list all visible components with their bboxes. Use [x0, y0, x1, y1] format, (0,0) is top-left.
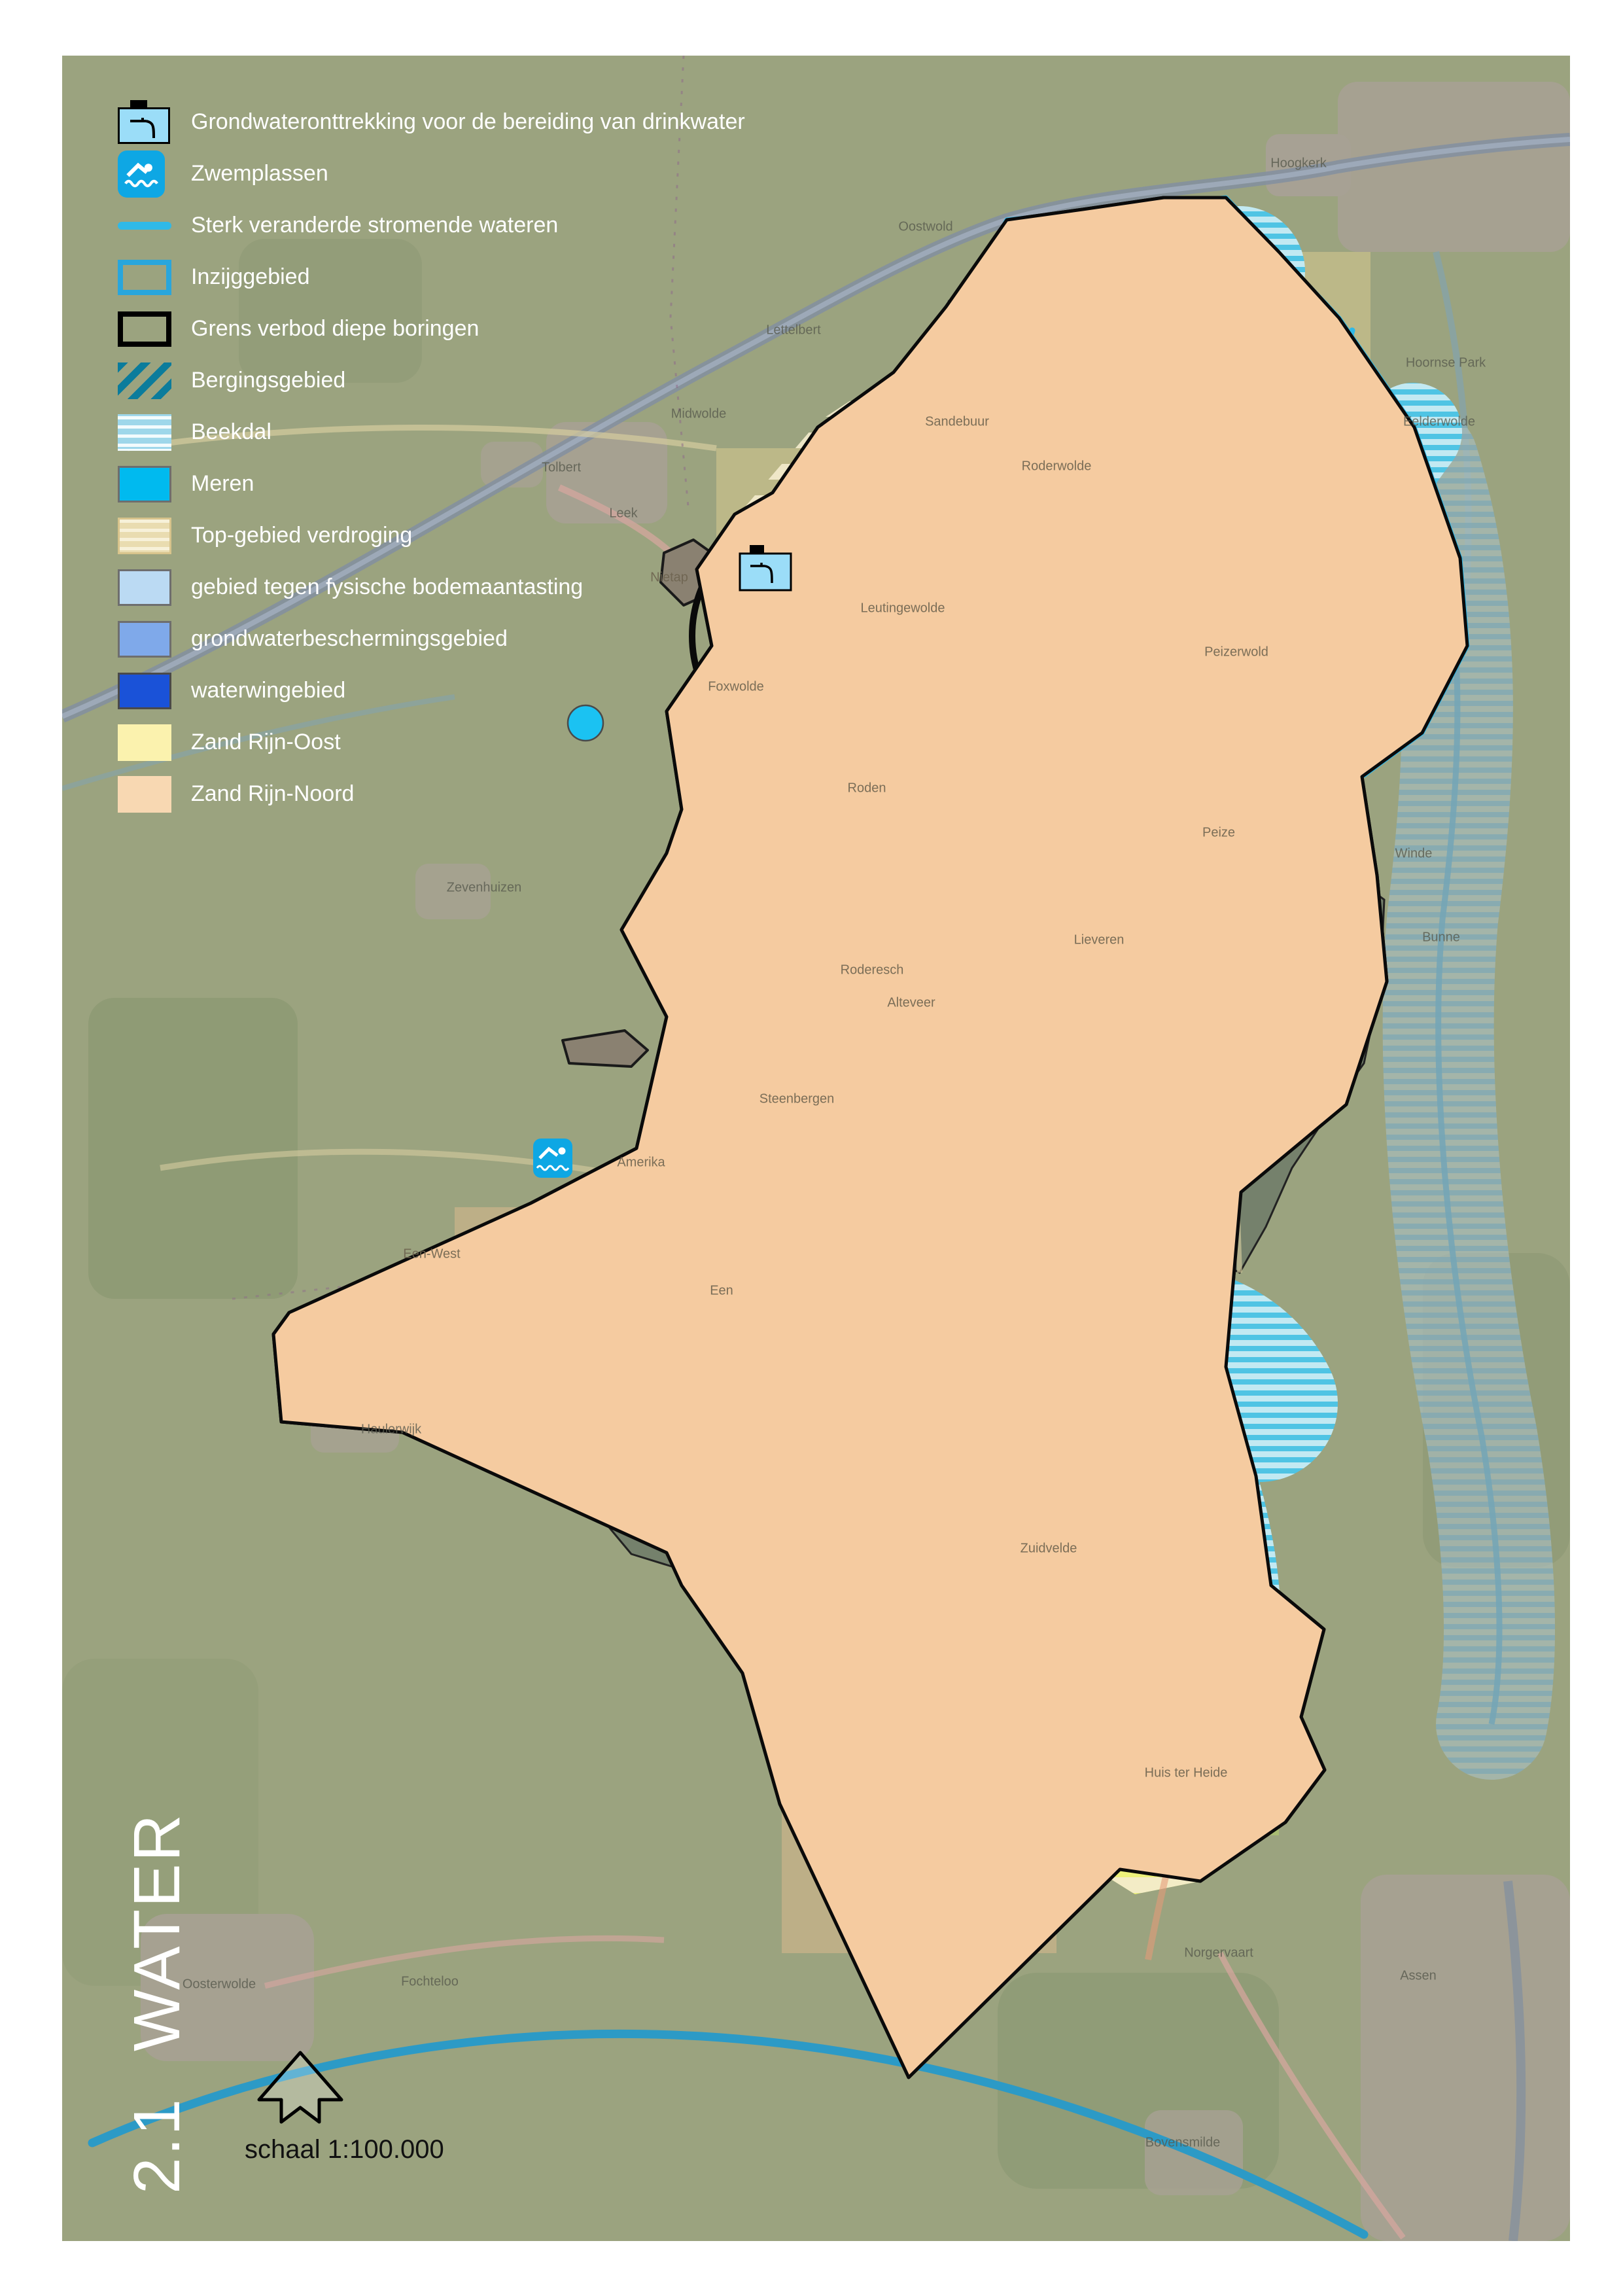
- legend-item-bergingsgebied: Bergingsgebied: [118, 355, 745, 406]
- legend-label: Meren: [191, 471, 254, 497]
- legend-item-drinkwater: Grondwateronttrekking voor de bereiding …: [118, 96, 745, 148]
- map-icon-swimmer: [533, 1139, 572, 1178]
- swimmer-icon: [118, 150, 171, 198]
- map-town-label: Huis ter Heide: [1145, 1766, 1228, 1781]
- map-town-label: Roderesch: [841, 963, 904, 978]
- legend-label: Inzijggebied: [191, 264, 309, 290]
- stripes-swatch: [118, 518, 171, 554]
- map-town-label: Fochteloo: [401, 1975, 459, 1990]
- map-town-label: Assen: [1400, 1969, 1437, 1984]
- map-town-label: Roden: [848, 781, 886, 796]
- legend-label: waterwingebied: [191, 678, 345, 703]
- legend-label: Zand Rijn-Noord: [191, 781, 354, 807]
- legend-item-bodemaantasting: gebied tegen fysische bodemaantasting: [118, 561, 745, 613]
- legend-item-topgebied: Top-gebied verdroging: [118, 510, 745, 561]
- legend-item-grondwaterbescherming: grondwaterbeschermingsgebied: [118, 613, 745, 665]
- legend-label: grondwaterbeschermingsgebied: [191, 626, 508, 652]
- legend-label: Zand Rijn-Oost: [191, 730, 341, 755]
- sheet-word: WATER: [120, 1812, 195, 2051]
- sheet-number: 2.1: [120, 2097, 195, 2194]
- map-town-label: Steenbergen: [759, 1092, 835, 1107]
- scale-label: schaal 1:100.000: [245, 2135, 444, 2164]
- map-town-label: Lettelbert: [766, 323, 820, 338]
- legend-label: Beekdal: [191, 419, 271, 445]
- outline-swatch: [118, 311, 171, 347]
- map-town-label: Alteveer: [887, 996, 935, 1011]
- legend-label: Bergingsgebied: [191, 368, 345, 393]
- map-town-label: Leutingewolde: [861, 601, 945, 616]
- map-town-label: Oostwold: [898, 220, 952, 235]
- legend-item-beekdal: Beekdal: [118, 406, 745, 458]
- faucet-icon: [118, 101, 171, 144]
- map-town-label: Een: [710, 1284, 733, 1299]
- legend-label: Sterk veranderde stromende wateren: [191, 213, 558, 238]
- map-town-label: Zuidvelde: [1021, 1542, 1077, 1557]
- map-town-label: Eelderwolde: [1403, 415, 1475, 430]
- sheet-title: 2.1 WATER: [120, 1749, 193, 2194]
- solid-swatch: [118, 621, 171, 658]
- map-town-label: Peize: [1202, 826, 1235, 841]
- legend-label: gebied tegen fysische bodemaantasting: [191, 574, 583, 600]
- hatch-swatch: [118, 362, 171, 399]
- map-town-label: Zevenhuizen: [447, 881, 522, 896]
- legend-label: Zwemplassen: [191, 161, 328, 186]
- legend-item-waterwingebied: waterwingebied: [118, 665, 745, 716]
- map-town-label: Norgervaart: [1184, 1946, 1253, 1961]
- line-swatch: [118, 222, 171, 230]
- solid-swatch: [118, 724, 171, 761]
- legend-label: Grens verbod diepe boringen: [191, 316, 479, 342]
- legend-item-zand-rijn-oost: Zand Rijn-Oost: [118, 716, 745, 768]
- map-town-label: Amerika: [617, 1156, 665, 1171]
- legend-item-zand-rijn-noord: Zand Rijn-Noord: [118, 768, 745, 820]
- map-town-label: Bovensmilde: [1145, 2136, 1221, 2151]
- north-arrow-icon: [256, 2050, 345, 2128]
- map-town-label: Lieveren: [1074, 933, 1125, 948]
- stripes-swatch: [118, 414, 171, 451]
- outline-swatch: [118, 260, 171, 295]
- map-town-label: Een-West: [403, 1247, 460, 1262]
- map-town-label: Peizerwold: [1204, 645, 1268, 660]
- map-town-label: Roderwolde: [1022, 459, 1092, 474]
- legend: Grondwateronttrekking voor de bereiding …: [118, 96, 745, 820]
- solid-swatch: [118, 466, 171, 503]
- solid-swatch: [118, 569, 171, 606]
- legend-item-stromende-wateren: Sterk veranderde stromende wateren: [118, 200, 745, 251]
- map-town-label: Winde: [1395, 847, 1433, 862]
- map-town-label: Hoornse Park: [1406, 356, 1486, 371]
- legend-item-grens-boringen: Grens verbod diepe boringen: [118, 303, 745, 355]
- map-town-label: Hoogkerk: [1270, 156, 1327, 171]
- legend-item-inzijggebied: Inzijggebied: [118, 251, 745, 303]
- map-town-label: Sandebuur: [925, 415, 989, 430]
- solid-swatch: [118, 776, 171, 813]
- legend-label: Grondwateronttrekking voor de bereiding …: [191, 109, 745, 135]
- legend-label: Top-gebied verdroging: [191, 523, 412, 548]
- map-town-label: Bunne: [1422, 930, 1460, 945]
- solid-swatch: [118, 673, 171, 709]
- map-town-label: Haulerwijk: [361, 1422, 421, 1438]
- map-canvas: Grondwateronttrekking voor de bereiding …: [62, 56, 1570, 2241]
- legend-item-zwemplassen: Zwemplassen: [118, 148, 745, 200]
- legend-item-meren: Meren: [118, 458, 745, 510]
